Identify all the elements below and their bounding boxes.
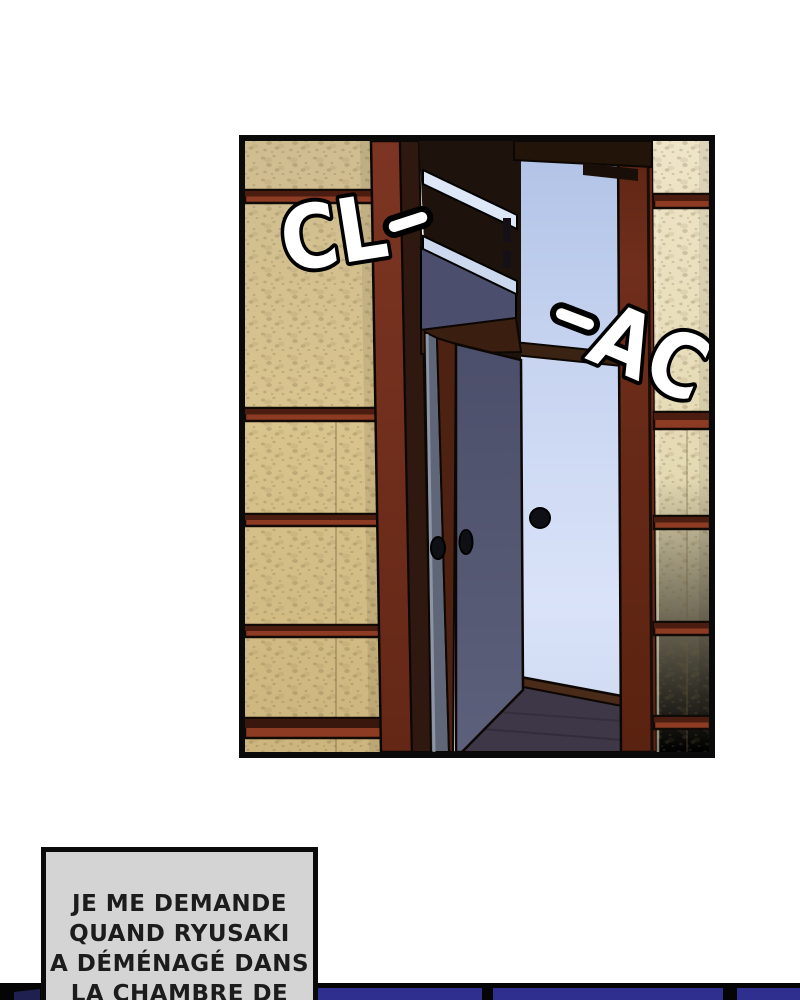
caption-line-1: JE ME DEMANDE (46, 889, 313, 919)
door-handle (460, 530, 473, 554)
caption-box: JE ME DEMANDE QUAND RYUSAKI A DÉMÉNAGÉ D… (41, 847, 318, 1000)
caption-line-4: LA CHAMBRE DE (46, 979, 313, 1000)
caption-text: JE ME DEMANDE QUAND RYUSAKI A DÉMÉNAGÉ D… (46, 852, 313, 1000)
caption-line-3: A DÉMÉNAGÉ DANS (46, 949, 313, 979)
sfx-cl-text: CL (273, 175, 394, 293)
door-handle (530, 508, 550, 528)
right-pillar (618, 141, 657, 752)
right-wall (653, 141, 710, 752)
door-handle (431, 537, 445, 559)
sliding-doors (425, 332, 523, 752)
comic-page: CL AC JE ME DEMANDE QUAND RYUSAKI A DÉMÉ… (0, 0, 800, 1000)
transom-slats (419, 141, 521, 360)
caption-line-2: QUAND RYUSAKI (46, 919, 313, 949)
